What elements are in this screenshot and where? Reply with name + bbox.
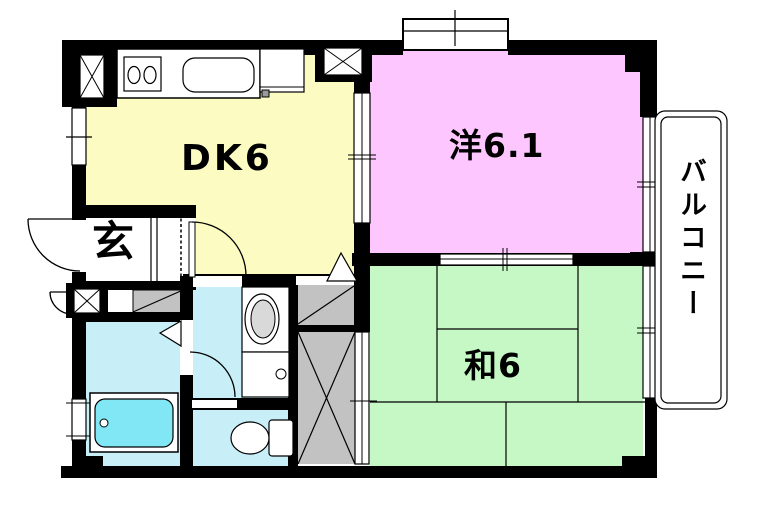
floor-plan: DK6 洋6.1 和6 玄 バルコニー — [0, 0, 761, 514]
toilet-tank — [269, 420, 293, 456]
bathtub — [90, 393, 178, 452]
kitchen — [117, 49, 304, 98]
western-room-label: 洋6.1 — [449, 129, 544, 162]
wash-basin — [242, 287, 289, 352]
kitchen-side-unit — [260, 49, 304, 92]
dk-floor-lower — [196, 218, 354, 276]
entrance-label: 玄 — [92, 221, 134, 263]
stove-burner — [128, 67, 140, 84]
balcony-label: バルコニー — [666, 157, 704, 367]
opening-toilet — [192, 400, 237, 408]
opening-washroom — [193, 276, 242, 287]
washing-machine-pan — [242, 352, 289, 397]
wall-bottom — [61, 466, 657, 478]
bathtub-drain — [100, 419, 108, 427]
faucet — [262, 90, 269, 97]
wall-right-upper — [640, 40, 657, 117]
dk-room-label: DK6 — [181, 141, 273, 177]
window-bath-left — [72, 399, 86, 440]
kitchen-sink — [183, 58, 254, 92]
wall-center — [354, 223, 370, 332]
japanese-room-label: 和6 — [464, 349, 522, 382]
toilet — [231, 420, 293, 456]
stove-burner — [144, 67, 156, 84]
toilet-bowl — [231, 422, 269, 454]
opening-bath — [180, 320, 193, 375]
wall-genkan-top — [72, 205, 196, 218]
opening-entrance — [72, 220, 86, 272]
genkan-details — [151, 213, 181, 281]
